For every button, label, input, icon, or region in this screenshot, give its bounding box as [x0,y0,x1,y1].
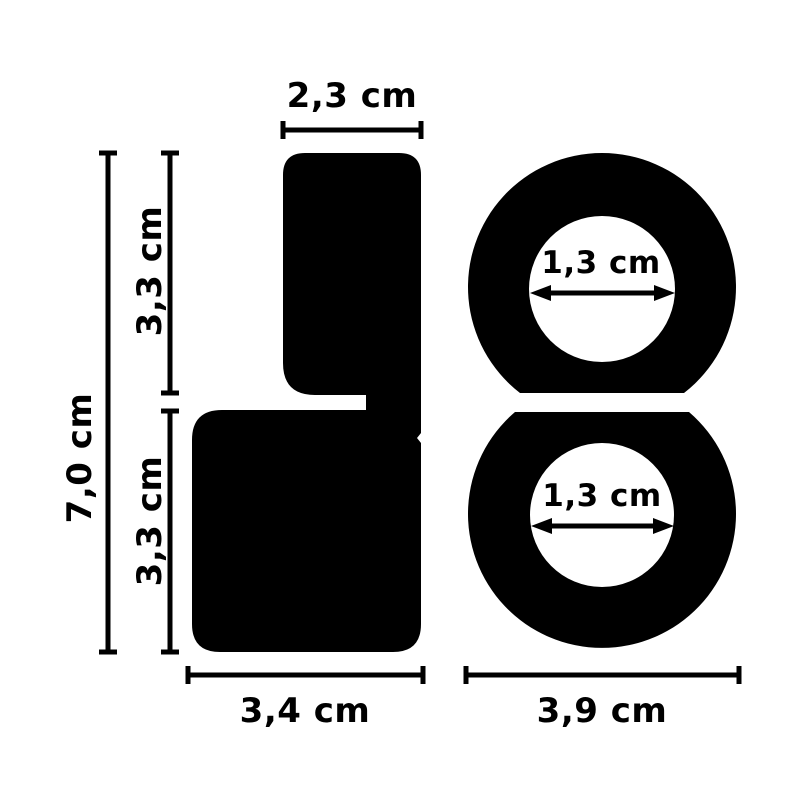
dimension-diagram: 2,3 cm 7,0 cm 3,3 cm 3,3 cm 3,4 cm [0,0,800,800]
side-view: 2,3 cm 7,0 cm 3,3 cm 3,3 cm 3,4 cm [60,76,423,731]
dim-label-upper-height: 3,3 cm [130,206,170,337]
diagram-canvas: 2,3 cm 7,0 cm 3,3 cm 3,3 cm 3,4 cm [0,0,800,800]
dim-line-top-width [283,121,421,139]
bottom-ring-hole [530,443,674,587]
dim-line-total-height [99,153,117,652]
dim-label-lower-height: 3,3 cm [130,456,170,587]
dim-line-base-width [188,666,423,684]
dim-label-bottom-ring-inner: 1,3 cm [542,478,661,514]
dim-label-top-ring-inner: 1,3 cm [541,245,660,281]
dim-label-base-width: 3,4 cm [240,691,371,731]
dim-label-top-width: 2,3 cm [287,76,418,116]
side-view-silhouette [192,153,421,652]
dim-line-outer-width [466,666,739,684]
dim-label-total-height: 7,0 cm [60,393,100,524]
front-view: 1,3 cm 1,3 cm 3,9 cm [466,153,739,731]
dim-label-outer-width: 3,9 cm [537,691,668,731]
